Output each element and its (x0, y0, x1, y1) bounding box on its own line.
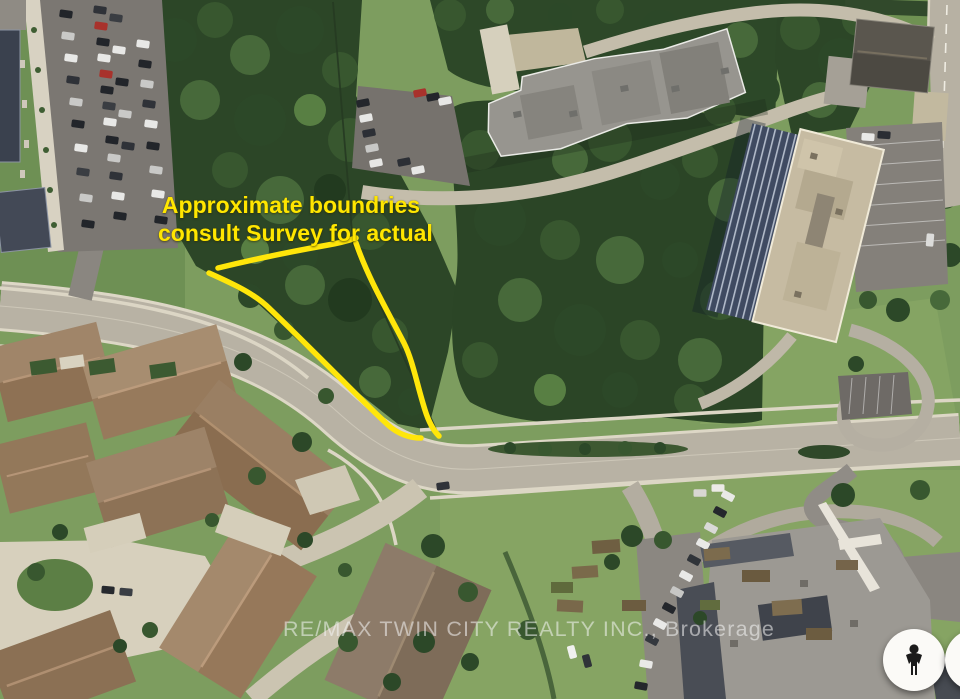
satellite-map[interactable]: Approximate boundries consult Survey for… (0, 0, 960, 699)
aerial-imagery (0, 0, 960, 699)
annotation-line1: Approximate boundries (158, 191, 424, 219)
annotation-line2: consult Survey for actual (158, 219, 424, 247)
pegman-icon (896, 640, 932, 680)
boundary-annotation: Approximate boundries consult Survey for… (158, 191, 424, 247)
brokerage-watermark: RE/MAX TWIN CITY REALTY INC., Brokerage (283, 617, 775, 642)
pegman-button[interactable] (883, 629, 945, 691)
